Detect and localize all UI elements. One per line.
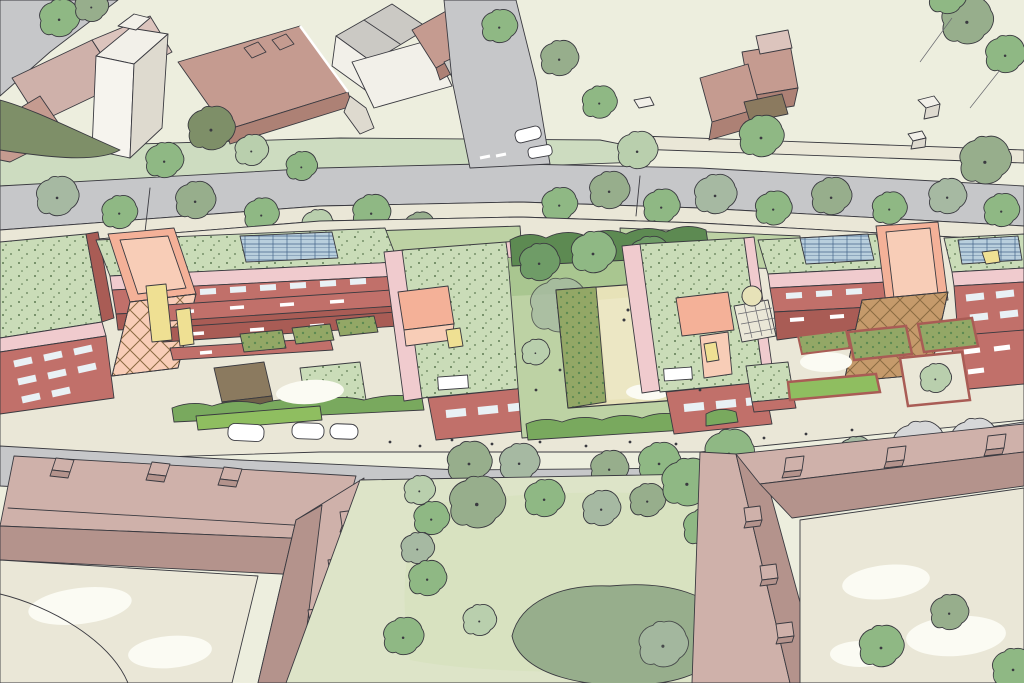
yellow-accent-wall (704, 342, 719, 362)
raised-planter (848, 326, 912, 360)
skylight (664, 367, 693, 381)
circular-planting (742, 286, 762, 306)
parked-car (330, 424, 359, 440)
solar-array (240, 232, 338, 262)
south-east-building (692, 424, 1024, 683)
skylight (438, 375, 469, 390)
parked-car (228, 423, 265, 442)
yellow-accent-wall (446, 328, 463, 348)
tree (986, 35, 1024, 72)
planter (292, 324, 334, 344)
solar-array (800, 234, 874, 264)
planter (336, 316, 378, 336)
green-roof (0, 234, 102, 338)
parked-car (292, 422, 325, 439)
masterplan-aerial-sketch: Hand-drawn aerial illustration of a resi… (0, 0, 1024, 683)
courtyard (0, 560, 258, 683)
planter (240, 330, 286, 352)
cycle-store-roof (214, 362, 272, 402)
illustration-canvas: Hand-drawn aerial illustration of a resi… (0, 0, 1024, 683)
path-patch (800, 352, 852, 372)
raised-planter (918, 318, 978, 352)
development-site (0, 217, 1024, 462)
